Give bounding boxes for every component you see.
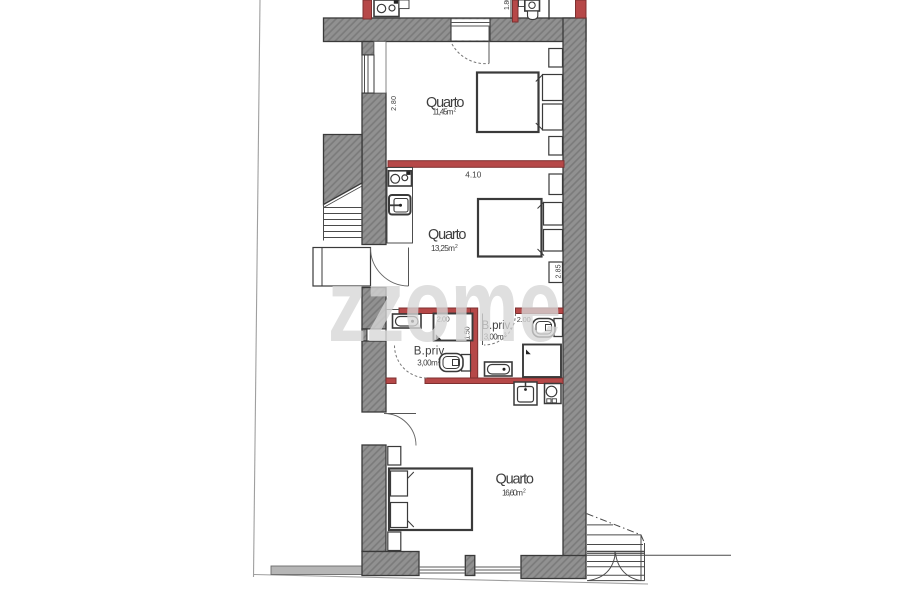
svg-text:Quarto: Quarto	[496, 472, 535, 488]
svg-text:1.80: 1.80	[504, 0, 511, 10]
svg-text:2: 2	[454, 108, 457, 114]
svg-text:2.80: 2.80	[391, 96, 398, 111]
svg-text:zzome: zzome	[328, 248, 561, 364]
svg-text:4.10: 4.10	[465, 171, 481, 180]
svg-text:16,60m: 16,60m	[502, 489, 523, 498]
svg-text:11,45m: 11,45m	[433, 108, 454, 117]
svg-text:2: 2	[523, 489, 526, 495]
svg-text:Quarto: Quarto	[428, 227, 467, 243]
